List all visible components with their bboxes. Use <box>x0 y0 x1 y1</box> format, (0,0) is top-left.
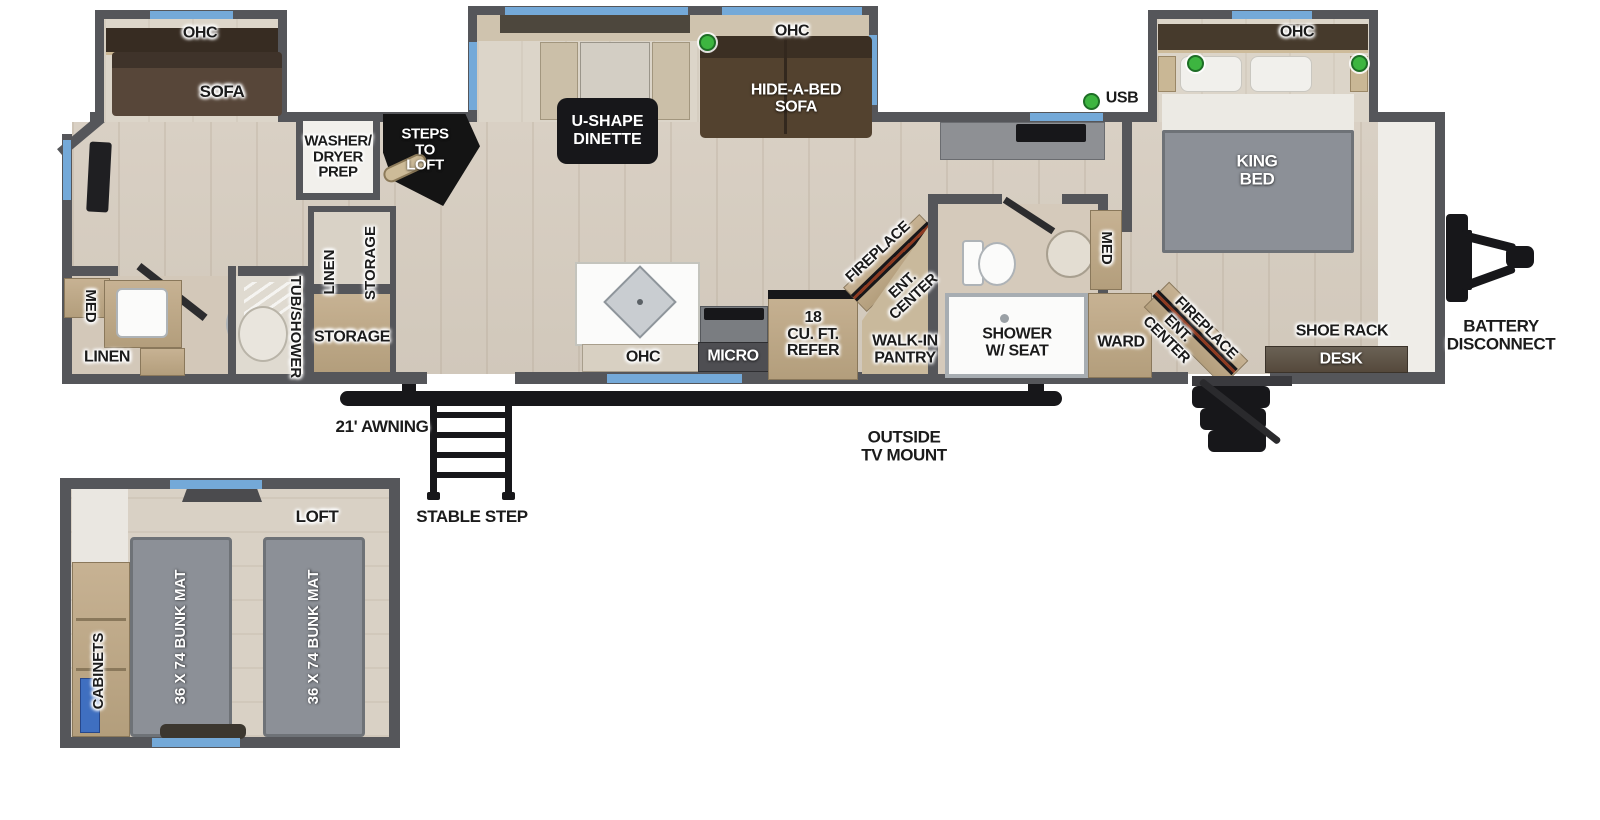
window-dinette-left <box>505 7 688 15</box>
ladder-rung-1 <box>435 412 507 418</box>
mid-vanity-bowl <box>1046 230 1094 278</box>
wall-right <box>1435 112 1445 384</box>
king-bed <box>1162 130 1354 253</box>
label-steps-to-loft: STEPS TO LOFT <box>401 127 448 174</box>
label-shower-w-seat: SHOWER W/ SEAT <box>982 326 1052 359</box>
rear-bath-wall-top-b <box>238 266 313 276</box>
label-battery-disconnect: BATTERY DISCONNECT <box>1447 317 1555 352</box>
tub-wall <box>228 266 236 378</box>
label-ohc-rear: OHC <box>183 26 217 43</box>
u-shape-dinette-label: U-SHAPE DINETTE <box>571 113 643 148</box>
loft-cabinet-shelf-1 <box>76 618 126 621</box>
label-cabinets: CABINETS <box>91 633 107 710</box>
pillow-right <box>1250 56 1312 92</box>
usb-dot-king-right-icon <box>1351 55 1368 72</box>
hitch-coupler <box>1506 246 1534 268</box>
entry-step-3 <box>1208 430 1266 452</box>
hall-tv <box>1016 124 1086 142</box>
window-rear-slide <box>150 11 233 19</box>
ladder-foot-right <box>502 492 515 500</box>
kitchen-sink-drain <box>637 299 643 305</box>
rv-floorplan: U-SHAPE DINETTE <box>0 0 1600 820</box>
label-ward: WARD <box>1097 335 1144 352</box>
loft-window-top <box>170 480 262 489</box>
label-desk: DESK <box>1320 352 1363 369</box>
nightstand-left <box>1158 56 1176 92</box>
loft-front-shelf <box>72 489 128 563</box>
label-med-mid: MED <box>1098 231 1114 264</box>
label-shoe-rack: SHOE RACK <box>1296 324 1388 341</box>
usb-dot-legend-icon <box>1083 93 1100 110</box>
label-linen-rear: LINEN <box>84 350 130 367</box>
shower-head-dot <box>1000 314 1009 323</box>
ohc-cabinet-king <box>1158 24 1368 53</box>
label-sofa: SOFA <box>200 83 245 101</box>
rear-bath-wall-top-a <box>62 266 118 276</box>
window-top-bedroom-hall <box>1030 113 1103 121</box>
window-king-slide <box>1232 11 1312 19</box>
mid-bath-wall-top-a <box>928 194 1002 204</box>
label-storage-vertical: STORAGE <box>363 226 379 300</box>
hitch-arm-lower <box>1466 264 1516 290</box>
window-kitchen <box>607 374 742 383</box>
sofa-back <box>112 52 282 68</box>
label-usb: USB <box>1106 91 1139 108</box>
label-bunk-left: 36 X 74 BUNK MAT <box>173 570 189 705</box>
ladder-foot-left <box>427 492 440 500</box>
label-washer-dryer-prep: WASHER/ DRYER PREP <box>304 134 371 181</box>
label-tub-shower: TUB/SHOWER <box>287 276 303 379</box>
label-stable-step: STABLE STEP <box>416 508 527 526</box>
window-dinette-right <box>722 7 862 15</box>
wall-bottom-3 <box>1270 372 1445 384</box>
label-med-rear: MED <box>82 289 98 322</box>
label-outside-tv-mount: OUTSIDE TV MOUNT <box>861 428 947 463</box>
label-king-bed: KING BED <box>1237 152 1278 187</box>
ladder-rung-2 <box>435 432 507 438</box>
window-left <box>63 140 71 200</box>
tub-base <box>238 306 288 362</box>
rear-bath-drawers <box>140 348 185 376</box>
toilet-bowl-mid <box>978 242 1016 286</box>
label-hide-a-bed: HIDE-A-BED SOFA <box>751 82 841 115</box>
awning-bracket-left <box>402 384 416 392</box>
label-awning: 21' AWNING <box>336 418 429 436</box>
loft-window-bottom <box>152 738 240 747</box>
usb-dot-dinette-icon <box>699 34 716 51</box>
label-storage: STORAGE <box>314 330 390 347</box>
refrigerator-top <box>768 290 858 299</box>
ladder-rung-4 <box>435 472 507 478</box>
rear-tv <box>86 141 112 212</box>
cooktop <box>704 308 764 320</box>
label-linen-vertical: LINEN <box>322 250 338 295</box>
wall-top-3 <box>875 112 1150 122</box>
dinette-label-box: U-SHAPE DINETTE <box>557 98 658 164</box>
stable-step-ladder <box>430 396 512 500</box>
label-micro: MICRO <box>707 349 758 366</box>
usb-dot-king-left-icon <box>1187 55 1204 72</box>
label-ohc-kitchen: OHC <box>626 350 660 367</box>
bedroom-wall <box>1122 112 1132 232</box>
label-ohc-dinette: OHC <box>775 24 809 41</box>
label-walk-in-pantry: WALK-IN PANTRY <box>872 333 938 366</box>
awning-bracket-right <box>1028 384 1044 392</box>
label-loft: LOFT <box>296 508 339 526</box>
label-ohc-king: OHC <box>1280 25 1314 42</box>
loft-bottom-cabinet <box>160 724 246 739</box>
label-refer: 18 CU. FT. REFER <box>787 310 839 360</box>
window-dinette-side-l <box>469 42 477 110</box>
ladder-rung-3 <box>435 452 507 458</box>
rear-sink <box>116 288 168 338</box>
loft-vent <box>182 489 262 502</box>
king-bed-sheet <box>1162 94 1354 134</box>
dinette-valance <box>500 15 690 33</box>
label-bunk-right: 36 X 74 BUNK MAT <box>306 570 322 705</box>
